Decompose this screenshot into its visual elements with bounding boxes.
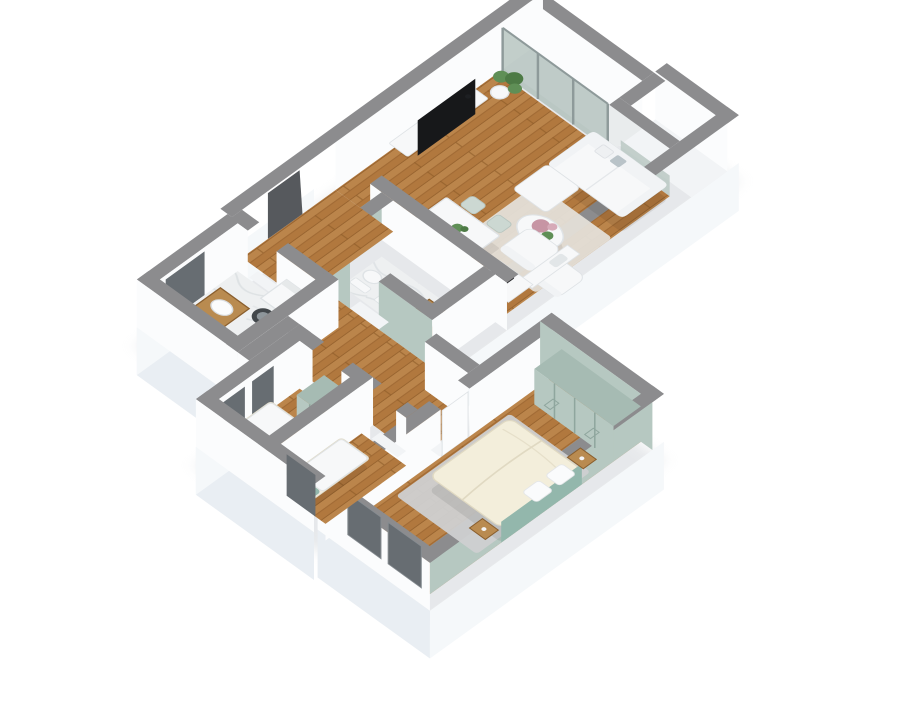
floorplan-canvas xyxy=(0,0,900,701)
iso-scene xyxy=(10,0,900,661)
floorplan-3d-render xyxy=(0,0,900,701)
